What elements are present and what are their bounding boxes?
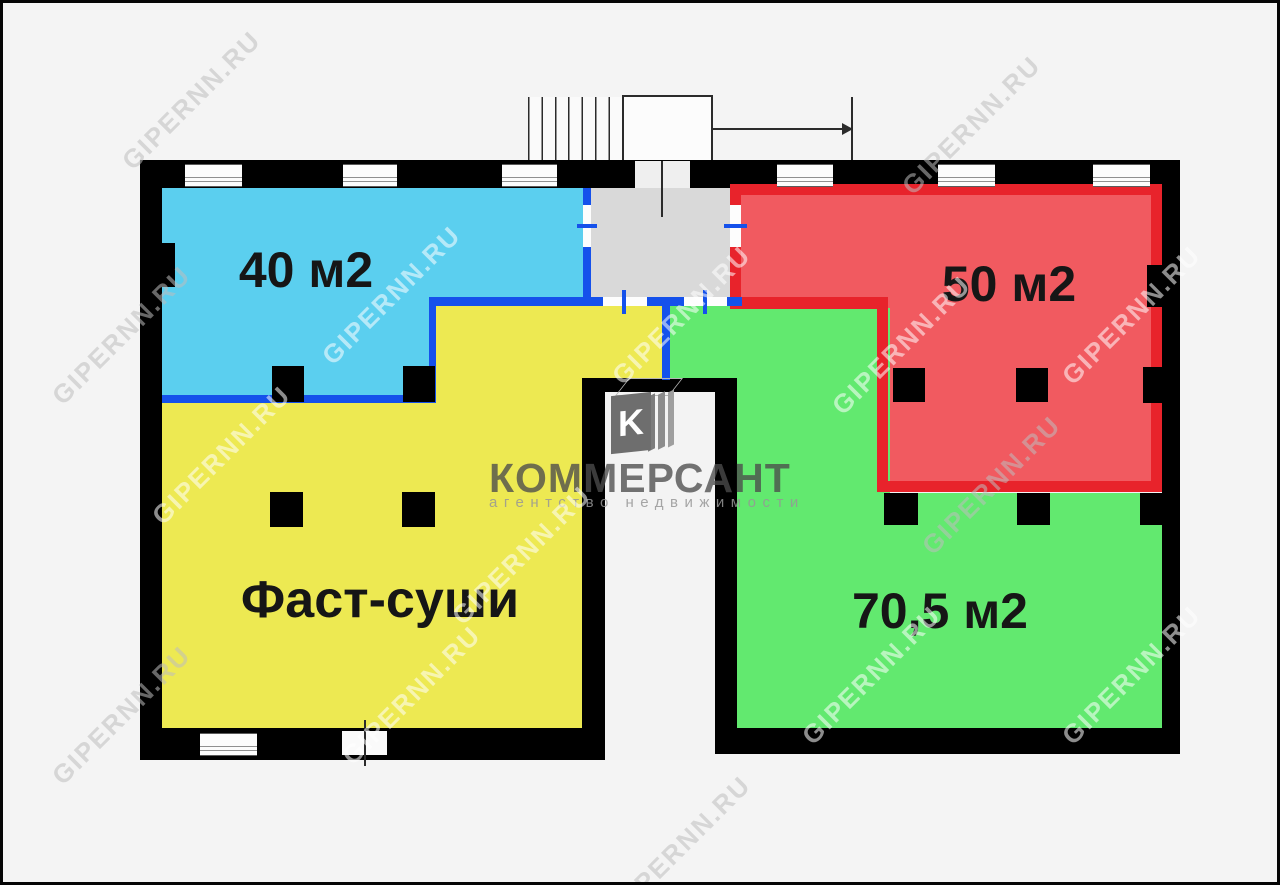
window	[502, 164, 557, 187]
wall-right	[1162, 160, 1180, 754]
direction-arrow-line	[711, 128, 843, 130]
room-label-yellow: Фаст-суши	[230, 574, 530, 626]
back-door-line	[364, 720, 366, 766]
column-marker	[893, 368, 925, 402]
column-marker	[272, 366, 304, 402]
window	[343, 164, 397, 187]
column-marker	[403, 366, 435, 402]
door-green-room-tick	[703, 290, 707, 314]
door-yellow-room-tick	[622, 290, 626, 314]
recess-wall-left	[582, 378, 605, 760]
window	[938, 164, 995, 187]
column-marker	[270, 492, 303, 527]
logo-page	[668, 390, 674, 448]
room-label-red: 50 м2	[909, 259, 1109, 309]
pilaster	[162, 243, 175, 287]
logo-tagline: агентство недвижимости	[489, 495, 789, 510]
wall-bottom-right	[715, 728, 1180, 754]
room-label-blue: 40 м2	[206, 245, 406, 295]
window	[777, 164, 833, 187]
window	[1093, 164, 1150, 187]
blue-wall-divider	[662, 306, 670, 380]
door-blue-room-tick	[577, 224, 597, 228]
room-green-area	[670, 306, 890, 380]
column-marker	[1017, 493, 1050, 525]
logo-monogram-icon: K	[611, 392, 651, 454]
logo-name: КОММЕРСАНТ	[489, 458, 789, 499]
stair-edge-line	[851, 97, 853, 163]
pilaster	[1147, 265, 1162, 307]
column-marker	[1143, 367, 1162, 403]
room-green-area	[737, 377, 890, 730]
watermark-text: GIPERNN.RU	[606, 770, 757, 885]
door-red-room-tick	[724, 224, 747, 228]
red-border-left-lower	[877, 297, 888, 492]
column-marker	[1140, 493, 1162, 525]
stairs-icon	[528, 97, 622, 163]
column-marker	[1016, 368, 1048, 402]
red-border-step	[730, 297, 888, 309]
red-border-right	[1151, 184, 1162, 492]
room-yellow-area	[162, 402, 605, 730]
room-label-green: 70,5 м2	[840, 586, 1040, 636]
column-marker	[884, 493, 918, 525]
floor-plan: K КОММЕРСАНТ агентство недвижимости 40 м…	[0, 0, 1280, 885]
logo-page	[658, 391, 665, 449]
column-marker	[402, 492, 435, 527]
room-blue-area	[433, 188, 583, 302]
watermark-text: GIPERNN.RU	[116, 25, 267, 176]
window	[185, 164, 242, 187]
recess-wall-right	[715, 378, 737, 754]
logo-monogram: K	[618, 401, 644, 446]
window	[200, 733, 257, 756]
wall-left	[140, 160, 162, 760]
stair-landing	[622, 95, 713, 163]
entrance-door-line	[661, 161, 663, 217]
red-border-bottom	[877, 481, 1162, 492]
